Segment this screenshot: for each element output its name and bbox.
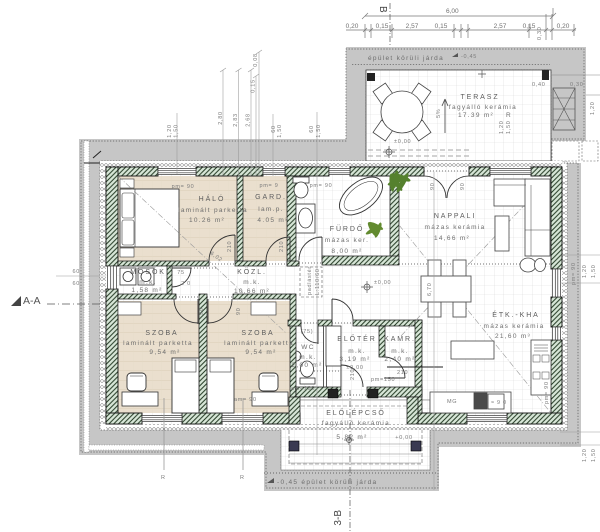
svg-text:6,70: 6,70 — [427, 282, 433, 296]
svg-text:90: 90 — [236, 307, 242, 315]
svg-text:5%: 5% — [436, 109, 442, 118]
svg-text:21,60 m³: 21,60 m³ — [495, 333, 531, 340]
svg-text:1,50: 1,50 — [591, 264, 597, 278]
svg-text:fagyálló kerámia: fagyálló kerámia — [322, 420, 390, 427]
svg-text:1,20: 1,20 — [582, 264, 588, 278]
svg-text:2,40 m²: 2,40 m² — [384, 356, 415, 363]
svg-text:210: 210 — [350, 369, 356, 380]
svg-text:90: 90 — [430, 182, 436, 190]
svg-text:SZOBA: SZOBA — [241, 330, 274, 337]
svg-text:laminált parketta: laminált parketta — [224, 340, 294, 347]
svg-text:90: 90 — [460, 182, 466, 190]
svg-text:2,57: 2,57 — [494, 23, 507, 30]
svg-text:≈: ≈ — [491, 400, 495, 406]
svg-text:210: 210 — [279, 241, 285, 252]
svg-text:0,15: 0,15 — [435, 23, 448, 30]
svg-text:laminált parketta: laminált parketta — [123, 340, 193, 347]
svg-text:ÉTK.-KHA: ÉTK.-KHA — [492, 310, 539, 319]
svg-text:pm= 9: pm= 9 — [260, 183, 279, 189]
svg-text:90: 90 — [199, 307, 205, 315]
svg-text:60: 60 — [72, 281, 80, 287]
svg-text:épület körüli járda: épület körüli járda — [368, 55, 444, 62]
svg-text:10.26 m²: 10.26 m² — [189, 217, 225, 224]
svg-text:m.k.: m.k. — [139, 279, 156, 286]
svg-text:10,66 m²: 10,66 m² — [234, 288, 270, 295]
svg-text:mázas kerámia: mázas kerámia — [425, 224, 486, 231]
svg-text:1,50: 1,50 — [316, 124, 322, 138]
svg-text:m.k.: m.k. — [391, 348, 408, 355]
svg-text:R: R — [506, 112, 512, 119]
svg-text:0,30: 0,30 — [537, 26, 543, 40]
svg-text:-0,45: -0,45 — [461, 54, 477, 60]
svg-text:1,20: 1,20 — [167, 124, 173, 138]
svg-text:HÁLÓ: HÁLÓ — [199, 194, 226, 203]
svg-text:210: 210 — [397, 370, 408, 376]
svg-text:-0,45 épület körüli járda: -0,45 épület körüli járda — [277, 479, 377, 486]
svg-text:2,57: 2,57 — [406, 23, 419, 30]
svg-text:0,20: 0,20 — [346, 23, 359, 30]
svg-text:75: 75 — [177, 270, 185, 276]
svg-text:m.k.: m.k. — [299, 354, 316, 361]
svg-text:1,50: 1,50 — [506, 120, 512, 134]
svg-text:8,00 m²: 8,00 m² — [331, 248, 362, 255]
svg-text:R: R — [161, 475, 166, 481]
svg-text:L:110/60: L:110/60 — [315, 268, 321, 295]
svg-text:laminált parketta: laminált parketta — [178, 207, 248, 214]
svg-text:17.39 m²: 17.39 m² — [458, 112, 494, 119]
svg-text:am= 90: am= 90 — [234, 397, 257, 403]
svg-text:9,54 m²: 9,54 m² — [245, 349, 276, 356]
svg-text:MG: MG — [447, 399, 457, 405]
svg-text:1,50: 1,50 — [591, 448, 597, 462]
svg-text:2 0: 2 0 — [181, 281, 191, 287]
svg-text:GARD.: GARD. — [255, 194, 287, 201]
svg-text:2,68: 2,68 — [246, 113, 252, 127]
svg-text:0,15: 0,15 — [376, 23, 389, 30]
svg-text:B: B — [377, 6, 388, 13]
svg-text:WC: WC — [301, 344, 314, 351]
svg-text:KÖZL.: KÖZL. — [237, 268, 267, 276]
svg-text:R: R — [240, 475, 245, 481]
svg-text:±0,00: ±0,00 — [374, 280, 391, 286]
svg-text:0,40: 0,40 — [532, 82, 546, 88]
svg-text:9,54 m²: 9,54 m² — [149, 349, 180, 356]
svg-text:(75): (75) — [301, 329, 314, 335]
svg-text:pm=150: pm=150 — [371, 377, 395, 383]
svg-text:FÜRDŐ: FÜRDŐ — [330, 224, 364, 233]
svg-text:3-B: 3-B — [333, 510, 344, 526]
svg-text:0,15: 0,15 — [251, 79, 257, 93]
svg-text:mázas kerámia: mázas kerámia — [484, 323, 545, 330]
svg-text:2,83: 2,83 — [233, 113, 239, 127]
svg-text:m.k.: m.k. — [348, 348, 365, 355]
svg-text:mázas ker.: mázas ker. — [325, 237, 369, 244]
svg-text:1,20: 1,20 — [590, 101, 596, 115]
svg-text:1,20: 1,20 — [582, 448, 588, 462]
svg-text:1,58 m²: 1,58 m² — [131, 287, 162, 294]
svg-text:210: 210 — [227, 241, 233, 252]
svg-text:KAMR.: KAMR. — [384, 336, 416, 343]
svg-text:fagyálló kerámia: fagyálló kerámia — [449, 104, 517, 111]
svg-text:TERASZ: TERASZ — [460, 94, 499, 101]
svg-text:0,08: 0,08 — [253, 53, 259, 67]
svg-text:pm= 90: pm= 90 — [172, 184, 195, 190]
svg-text:3,19 m²: 3,19 m² — [339, 356, 370, 363]
svg-text:0,15: 0,15 — [523, 23, 536, 30]
svg-text:pm= 90: pm= 90 — [310, 183, 333, 189]
svg-text:60: 60 — [309, 125, 315, 133]
svg-text:4.05 m²: 4.05 m² — [257, 217, 288, 224]
svg-text:m.k.: m.k. — [243, 279, 260, 286]
svg-text:1,20: 1,20 — [499, 120, 505, 134]
svg-text:lam.p.: lam.p. — [258, 206, 284, 213]
svg-text:1,50: 1,50 — [174, 124, 180, 138]
svg-text:±0,00: ±0,00 — [394, 139, 411, 145]
svg-text:9 0: 9 0 — [497, 400, 507, 406]
svg-text:2,00 m²: 2,00 m² — [291, 362, 322, 369]
svg-text:0,30: 0,30 — [570, 82, 584, 88]
svg-text:ELŐLÉPCSŐ: ELŐLÉPCSŐ — [326, 408, 386, 417]
svg-text:pm= 90: pm= 90 — [544, 381, 550, 404]
svg-text:6,00: 6,00 — [446, 8, 459, 15]
svg-text:A-A: A-A — [23, 295, 41, 307]
svg-text:NAPPALI: NAPPALI — [434, 213, 476, 220]
svg-text:SZOBA: SZOBA — [145, 330, 178, 337]
svg-text:1,50: 1,50 — [277, 124, 283, 138]
svg-text:MOSÓK.: MOSÓK. — [130, 267, 169, 276]
svg-text:2,80: 2,80 — [218, 111, 224, 125]
svg-text:14,66 m²: 14,66 m² — [434, 235, 470, 242]
svg-text:am=190: am=190 — [291, 386, 315, 392]
svg-text:ELŐTÉR: ELŐTÉR — [337, 334, 376, 343]
svg-text:pm= 90: pm= 90 — [571, 262, 577, 285]
svg-text:60: 60 — [72, 269, 80, 275]
svg-text:padlástér: padlástér — [307, 266, 313, 295]
svg-text:0,20: 0,20 — [557, 23, 570, 30]
svg-text:+0,00: +0,00 — [395, 435, 412, 441]
